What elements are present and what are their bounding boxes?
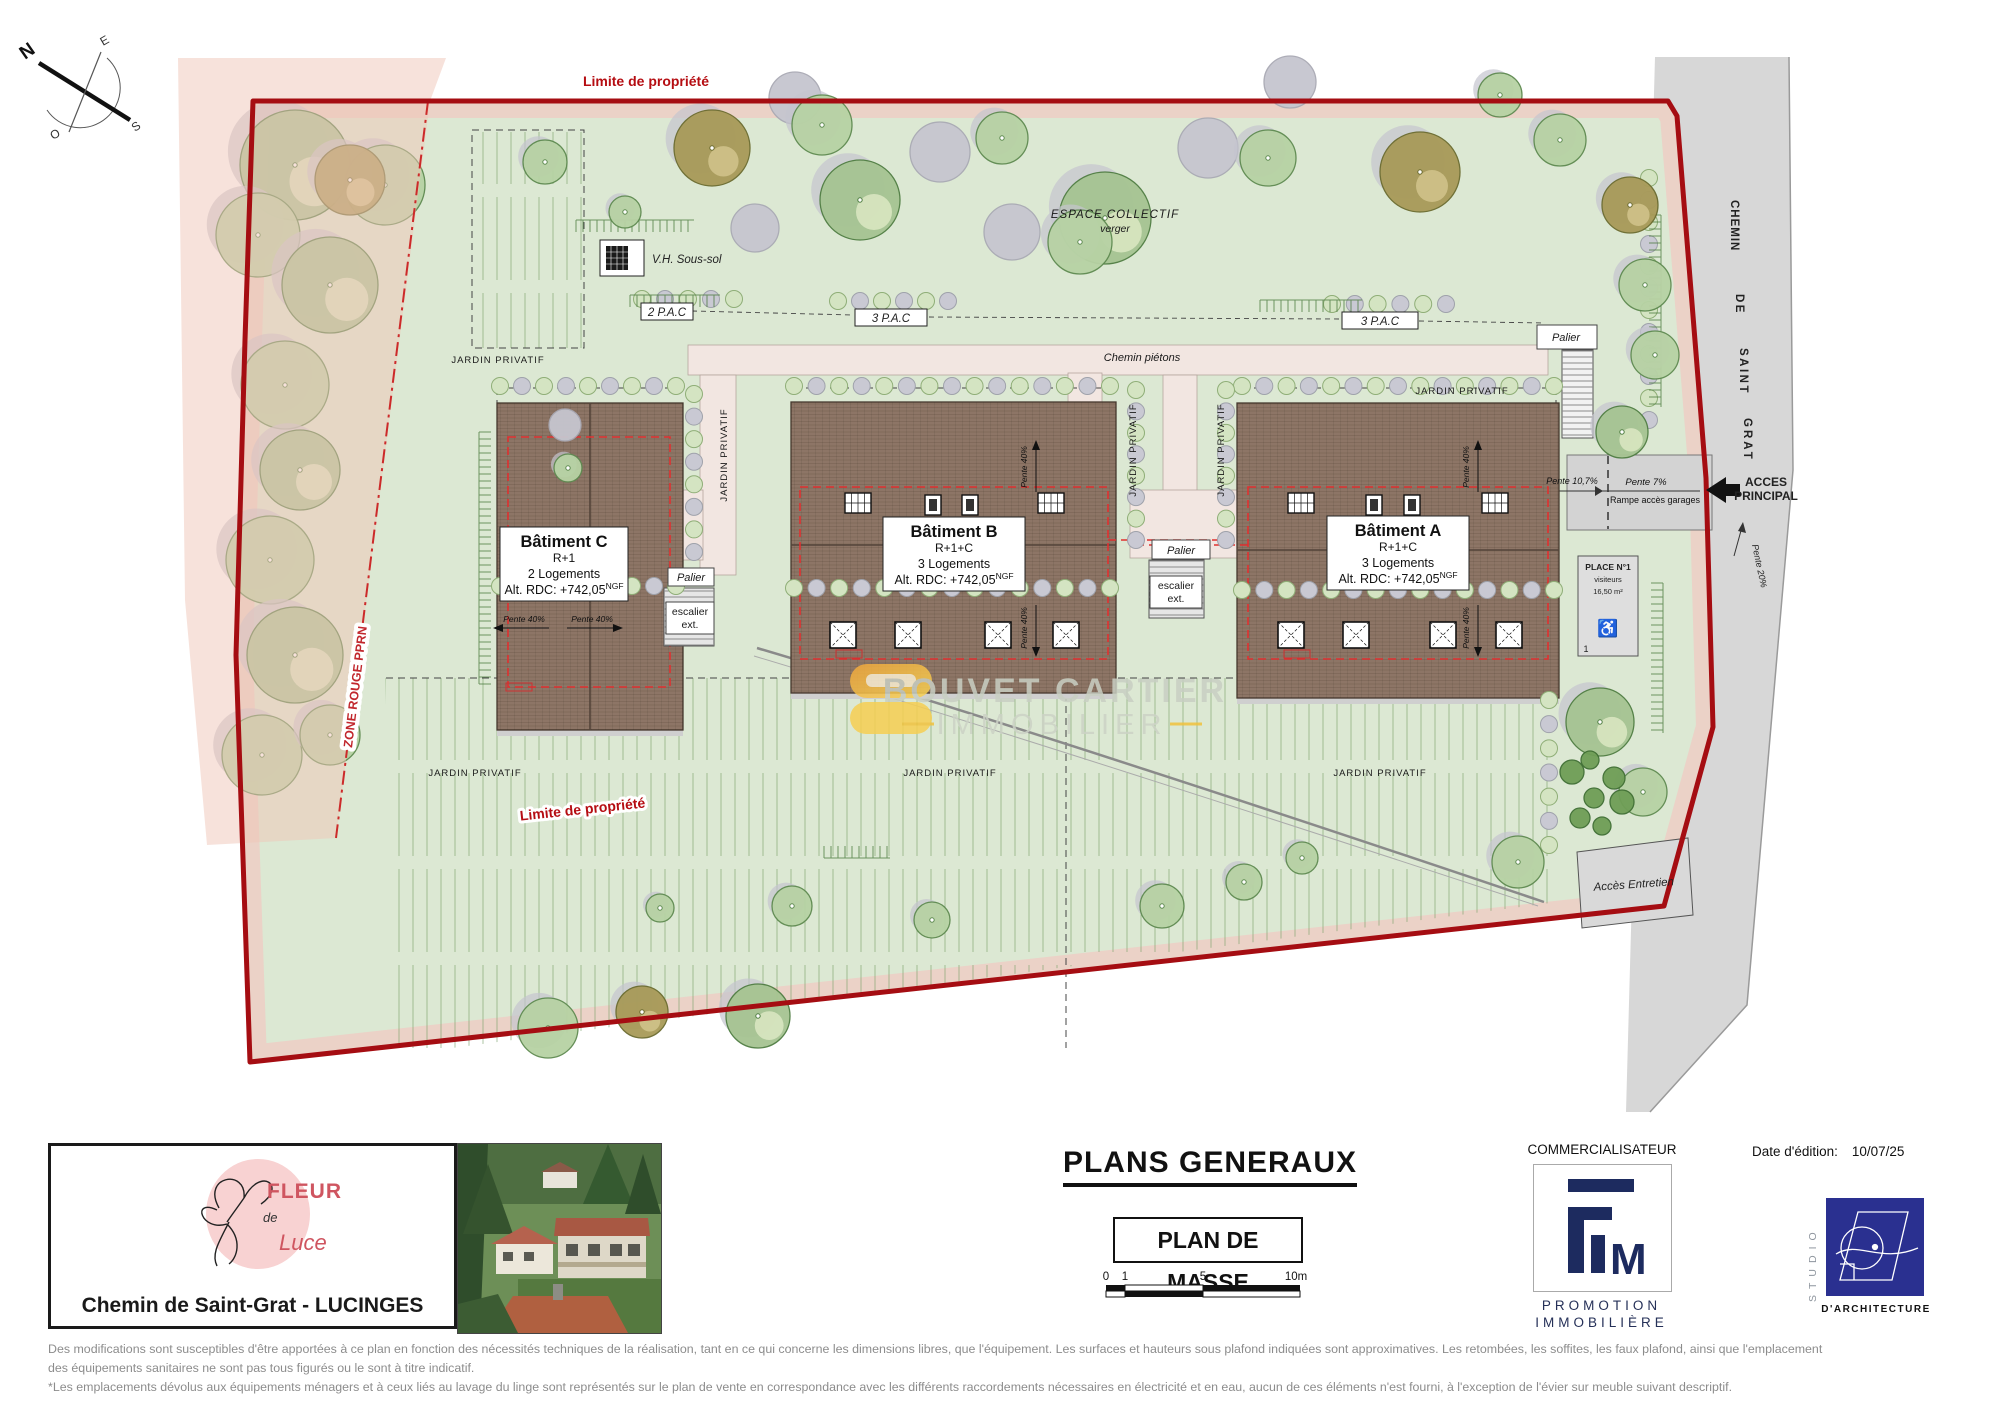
road-name: SAINT <box>1737 348 1749 395</box>
scale-bar: 0 1 5 10m <box>1100 1268 1310 1308</box>
palier-label-c: Palier <box>677 572 706 584</box>
shrub <box>1102 580 1119 597</box>
fim-logo: M <box>1533 1164 1672 1292</box>
building-a-units: 3 Logements <box>1362 556 1434 570</box>
compass-s: S <box>129 118 144 134</box>
road-name: DE <box>1733 294 1745 315</box>
shrub <box>726 291 743 308</box>
building-c-alt-sup: NGF <box>606 581 624 591</box>
disclaimer-line: *Les emplacements dévolus aux équipement… <box>48 1378 1962 1397</box>
roof-window <box>1366 495 1382 515</box>
shrub <box>808 580 825 597</box>
compass-o: O <box>48 126 63 143</box>
shrub <box>896 293 913 310</box>
promotion-label: PROMOTION <box>1519 1297 1684 1314</box>
scale-1: 1 <box>1122 1271 1128 1283</box>
roof-window <box>1404 495 1420 515</box>
shrub <box>492 378 509 395</box>
vh-sous-sol-label: V.H. Sous-sol <box>652 254 722 266</box>
shrub <box>966 378 983 395</box>
roof-window <box>962 495 978 515</box>
date-value: 10/07/25 <box>1852 1144 1905 1159</box>
sheet-title: PLANS GENERAUX <box>1015 1146 1405 1187</box>
watermark-line2: IMMOBILIER <box>937 709 1168 741</box>
acces-principal-label: ACCES <box>1745 475 1787 489</box>
palier-label-top: Palier <box>1552 332 1581 344</box>
shrub <box>1369 296 1386 313</box>
shrub <box>1541 716 1558 733</box>
shrub <box>686 408 703 425</box>
shrub <box>830 293 847 310</box>
chemin-pietons-label: Chemin piétons <box>1104 352 1181 364</box>
shrub <box>686 498 703 515</box>
jardin-label: JARDIN PRIVATIF <box>903 768 996 779</box>
svg-text:escalier: escalier <box>672 606 709 618</box>
shrub <box>1523 378 1540 395</box>
roof-window <box>925 495 941 515</box>
shrub <box>1541 812 1558 829</box>
escalier-label: ext. <box>1168 593 1185 605</box>
shrub <box>1438 296 1455 313</box>
shrub <box>514 378 531 395</box>
building-b-floors: R+1+C <box>935 541 973 555</box>
acces-principal-label: PRINCIPAL <box>1734 489 1798 503</box>
shrub <box>876 378 893 395</box>
shrub <box>1256 582 1273 599</box>
shrub <box>668 378 685 395</box>
shrub <box>1218 510 1235 527</box>
disclaimer-line: des équipements sanitaires ne sont pas t… <box>48 1359 1962 1378</box>
jardin-label: JARDIN PRIVATIF <box>1128 403 1139 496</box>
svg-text:ext.: ext. <box>682 619 699 631</box>
limite-top-label: Limite de propriété <box>583 73 709 89</box>
pac3-label-a: 3 P.A.C <box>1361 316 1400 328</box>
road-name: CHEMIN <box>1728 200 1740 251</box>
shrub <box>686 453 703 470</box>
place1-title: PLACE N°1 <box>1585 562 1631 572</box>
place1-sub: visiteurs <box>1594 575 1622 584</box>
building-a-alt: Alt. RDC: +742,05 <box>1338 572 1439 586</box>
shrub <box>944 378 961 395</box>
shrub <box>1034 580 1051 597</box>
logo-de-text: de <box>263 1210 277 1225</box>
pente40-label: Pente 40% <box>503 614 545 624</box>
compass-n: N <box>16 39 39 64</box>
building-b-alt: Alt. RDC: +742,05 <box>894 573 995 587</box>
shrub <box>1415 296 1432 313</box>
jardin-label: JARDIN PRIVATIF <box>1415 386 1508 397</box>
shrub <box>853 580 870 597</box>
roof-window <box>1430 622 1456 648</box>
shrub <box>989 378 1006 395</box>
project-photo <box>457 1143 662 1334</box>
palier-label-ba: Palier <box>1167 545 1196 557</box>
tree <box>1581 751 1599 769</box>
pente107-label: Pente 10,7% <box>1546 476 1598 486</box>
building-a-name: Bâtiment A <box>1355 522 1442 540</box>
tree <box>549 409 581 441</box>
immobiliere-label: IMMOBILIÈRE <box>1519 1314 1684 1331</box>
pente40-label: Pente 40% <box>571 614 613 624</box>
roof-window <box>830 622 856 648</box>
jardin-label: JARDIN PRIVATIF <box>428 768 521 779</box>
shrub <box>1056 580 1073 597</box>
project-title-block: FLEUR de Luce Chemin de Saint-Grat - LUC… <box>48 1143 457 1329</box>
espace-collectif-label: ESPACE COLLECTIF <box>1051 209 1179 221</box>
shrub <box>602 378 619 395</box>
svg-text:ext.: ext. <box>1168 593 1185 605</box>
shrub <box>580 378 597 395</box>
shrub <box>1392 296 1409 313</box>
building-a-floors: R+1+C <box>1379 540 1417 554</box>
disclaimer-line: Des modifications sont susceptibles d'êt… <box>48 1340 1962 1359</box>
shrub <box>1128 382 1145 399</box>
shrub <box>1234 582 1251 599</box>
date-label: Date d'édition: <box>1752 1144 1838 1159</box>
shrub <box>1541 740 1558 757</box>
wheelchair-icon: ♿ <box>1597 618 1618 638</box>
escalier-label: ext. <box>682 619 699 631</box>
scale-0: 0 <box>1103 1271 1109 1283</box>
compass-e: E <box>98 32 112 48</box>
shrub <box>1079 580 1096 597</box>
shrub <box>831 378 848 395</box>
tree <box>1570 808 1590 828</box>
building-c-name: Bâtiment C <box>520 533 607 551</box>
shrub <box>1128 532 1145 549</box>
shrub <box>1056 378 1073 395</box>
site-plan: ZONE ROUGE PPRN Limite de propriété Limi… <box>0 0 2000 1140</box>
roof-window <box>1288 493 1314 513</box>
jardin-label: JARDIN PRIVATIF <box>719 408 730 501</box>
shrub <box>1011 378 1028 395</box>
shrub <box>558 378 575 395</box>
building-a-alt-sup: NGF <box>1440 570 1458 580</box>
shrub <box>1278 582 1295 599</box>
shrub <box>536 378 553 395</box>
shrub <box>831 580 848 597</box>
shrub <box>786 378 803 395</box>
roof-window <box>1053 622 1079 648</box>
shrub <box>686 386 703 403</box>
shrub <box>686 431 703 448</box>
roof-window <box>985 622 1011 648</box>
roof-window <box>1496 622 1522 648</box>
building-c-alt: Alt. RDC: +742,05 <box>504 583 605 597</box>
logo-fleur-text: FLEUR <box>267 1180 342 1203</box>
shrub <box>1541 764 1558 781</box>
shrub <box>852 293 869 310</box>
building-b-name: Bâtiment B <box>910 523 997 541</box>
building-b-alt-sup: NGF <box>996 571 1014 581</box>
plans-generaux-title: PLANS GENERAUX <box>1063 1146 1357 1187</box>
shrub <box>921 378 938 395</box>
shrub <box>853 378 870 395</box>
watermark-line1: BOUVET CARTIER <box>883 672 1227 710</box>
logo-luce-text: Luce <box>279 1230 327 1255</box>
plan-de-masse-box: PLAN DE MASSE <box>1113 1217 1303 1263</box>
shrub <box>1128 510 1145 527</box>
garage-ramp <box>1545 455 1712 530</box>
shrub <box>1034 378 1051 395</box>
shrub <box>1234 378 1251 395</box>
shrub <box>1324 296 1341 313</box>
shrub <box>646 378 663 395</box>
shrub <box>1278 378 1295 395</box>
tree <box>1560 760 1584 784</box>
shrub <box>1541 788 1558 805</box>
verger-label: verger <box>1100 223 1130 235</box>
fleur-de-luce-logo: FLEUR de Luce <box>51 1146 454 1286</box>
shrub <box>1079 378 1096 395</box>
shrub <box>1501 582 1518 599</box>
roof-window <box>895 622 921 648</box>
place1-area: 16,50 m² <box>1593 587 1623 596</box>
pente40-label: Pente 40% <box>1019 446 1029 488</box>
roof-window <box>845 493 871 513</box>
tree <box>1178 118 1238 178</box>
shrub <box>1323 378 1340 395</box>
shrub <box>1218 382 1235 399</box>
tree <box>1593 817 1611 835</box>
shrub <box>686 521 703 538</box>
studio-architecture-logo: STUDIO D'ARCHITECTURE <box>1796 1190 1930 1335</box>
shrub <box>1541 692 1558 709</box>
jardin-label: JARDIN PRIVATIF <box>1216 403 1227 496</box>
studio-vertical-text: STUDIO <box>1807 1226 1819 1302</box>
shrub <box>1300 582 1317 599</box>
building-c-units: 2 Logements <box>528 567 600 581</box>
plan-de-masse-page: ZONE ROUGE PPRN Limite de propriété Limi… <box>0 0 2000 1413</box>
roof-window <box>1038 493 1064 513</box>
shrub <box>918 293 935 310</box>
shrub <box>1218 532 1235 549</box>
shrub <box>874 293 891 310</box>
disclaimer: Des modifications sont susceptibles d'êt… <box>48 1340 1962 1397</box>
pente40-label: Pente 40% <box>1019 607 1029 649</box>
shrub <box>1346 296 1363 313</box>
shrub <box>786 580 803 597</box>
escalier-label: escalier <box>1158 580 1195 592</box>
tree <box>731 204 779 252</box>
shrub <box>1541 837 1558 854</box>
jardin-label: JARDIN PRIVATIF <box>1333 768 1426 779</box>
pac3-label-b: 3 P.A.C <box>872 313 911 325</box>
rampe-label: Rampe accès garages <box>1610 495 1701 505</box>
shrub <box>1256 378 1273 395</box>
svg-text:escalier: escalier <box>1158 580 1195 592</box>
shrub <box>686 476 703 493</box>
pente40-label: Pente 40% <box>1461 446 1471 488</box>
shrub <box>808 378 825 395</box>
project-address: Chemin de Saint-Grat - LUCINGES <box>51 1294 454 1318</box>
shrub <box>1479 582 1496 599</box>
studio-bottom-text: D'ARCHITECTURE <box>1821 1304 1930 1315</box>
tree <box>1610 790 1634 814</box>
shrub <box>1345 378 1362 395</box>
shrub <box>1523 582 1540 599</box>
shrub <box>703 291 720 308</box>
pente40-label: Pente 40% <box>1461 607 1471 649</box>
roof-window <box>1278 622 1304 648</box>
roof-window <box>1343 622 1369 648</box>
fim-promotion-immobiliere: PROMOTION IMMOBILIÈRE <box>1519 1297 1684 1331</box>
pente7-label: Pente 7% <box>1625 477 1667 488</box>
shrub <box>1300 378 1317 395</box>
building-c-floors: R+1 <box>553 551 576 565</box>
edition-date: Date d'édition:10/07/25 <box>1752 1144 1904 1159</box>
shrub <box>1390 378 1407 395</box>
shrub <box>898 378 915 395</box>
shrub <box>1546 582 1563 599</box>
shrub <box>624 378 641 395</box>
shrub <box>1102 378 1119 395</box>
tree <box>910 122 970 182</box>
shrub <box>1367 378 1384 395</box>
roof-window <box>1482 493 1508 513</box>
fim-m-letter: M <box>1610 1235 1647 1284</box>
road-name: GRAT <box>1741 418 1753 462</box>
scale-10m: 10m <box>1285 1271 1307 1283</box>
scale-5: 5 <box>1200 1271 1206 1283</box>
jardin-label: JARDIN PRIVATIF <box>451 355 544 366</box>
shrub <box>646 578 663 595</box>
pac2-label: 2 P.A.C <box>647 307 687 319</box>
shrub <box>686 544 703 561</box>
tree <box>1584 788 1604 808</box>
compass-rose: N E S O <box>16 32 143 142</box>
escalier-label: escalier <box>672 606 709 618</box>
tree <box>1603 767 1625 789</box>
building-b-units: 3 Logements <box>918 557 990 571</box>
place1-number: 1 <box>1583 644 1588 654</box>
shrub <box>940 293 957 310</box>
shrub <box>1546 378 1563 395</box>
commercialisateur-label: COMMERCIALISATEUR <box>1524 1142 1680 1157</box>
tree <box>984 204 1040 260</box>
